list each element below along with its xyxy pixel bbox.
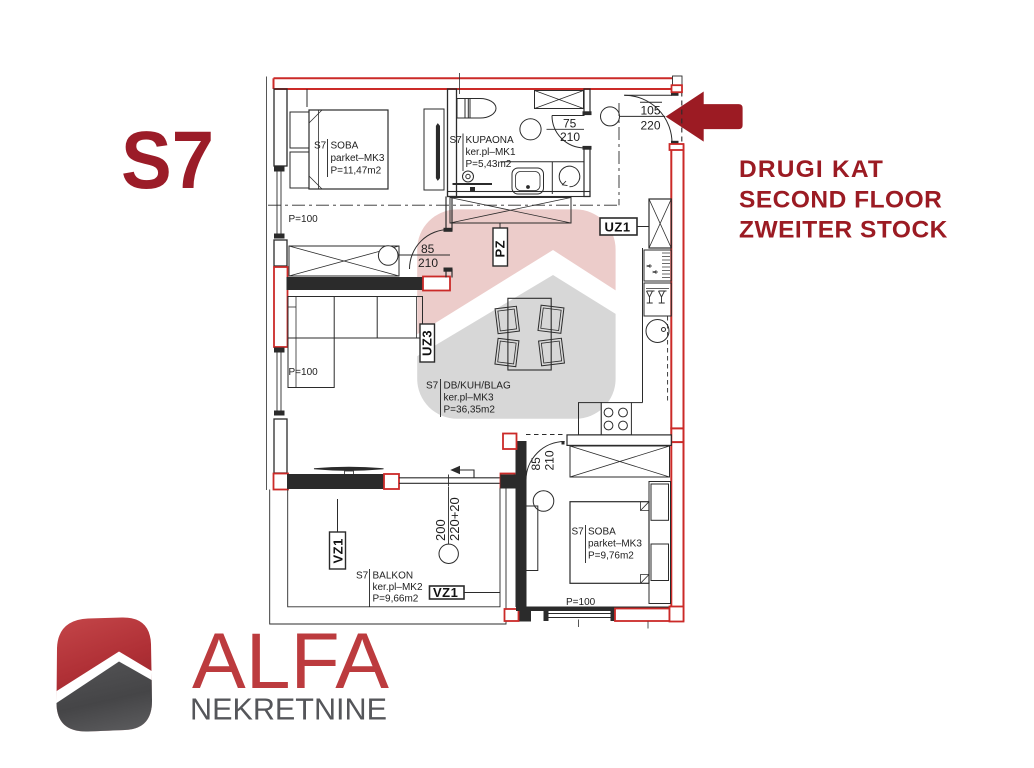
svg-text:ker.pl–MK2: ker.pl–MK2: [373, 582, 423, 593]
svg-text:ZWEITER STOCK: ZWEITER STOCK: [739, 217, 948, 244]
svg-text:UZ1: UZ1: [605, 220, 631, 235]
svg-text:P=100: P=100: [566, 597, 596, 608]
svg-text:ker.pl–MK3: ker.pl–MK3: [444, 393, 494, 404]
svg-text:105: 105: [641, 104, 661, 118]
svg-text:NEKRETNINE: NEKRETNINE: [190, 693, 387, 727]
svg-text:VZ1: VZ1: [433, 585, 458, 600]
svg-text:P=5,43m2: P=5,43m2: [466, 159, 512, 170]
svg-text:SOBA: SOBA: [331, 141, 359, 152]
svg-text:parket–MK3: parket–MK3: [588, 539, 642, 550]
svg-text:P=11,47m2: P=11,47m2: [331, 166, 382, 177]
svg-text:P=9,76m2: P=9,76m2: [588, 551, 634, 562]
svg-text:S7: S7: [450, 135, 463, 146]
svg-text:200: 200: [433, 519, 448, 541]
svg-text:UZ3: UZ3: [420, 330, 435, 356]
svg-text:220+20: 220+20: [447, 497, 462, 541]
svg-text:P=36,35m2: P=36,35m2: [444, 405, 496, 416]
svg-text:SECOND FLOOR: SECOND FLOOR: [739, 187, 942, 214]
svg-text:S7: S7: [356, 571, 369, 582]
svg-text:S7: S7: [314, 141, 327, 152]
svg-text:P=9,66m2: P=9,66m2: [373, 594, 419, 605]
svg-text:75: 75: [563, 117, 577, 131]
svg-text:ker.pl–MK1: ker.pl–MK1: [466, 147, 516, 158]
svg-text:210: 210: [560, 130, 580, 144]
svg-text:DB/KUH/BLAG: DB/KUH/BLAG: [444, 381, 511, 392]
svg-text:S7: S7: [121, 115, 214, 206]
svg-text:SOBA: SOBA: [588, 527, 616, 538]
svg-text:DRUGI KAT: DRUGI KAT: [739, 156, 884, 183]
svg-text:S7: S7: [572, 527, 585, 538]
svg-text:85: 85: [529, 457, 543, 471]
svg-text:VZ1: VZ1: [331, 538, 346, 563]
svg-text:KUPAONA: KUPAONA: [466, 135, 514, 146]
svg-text:85: 85: [421, 242, 435, 256]
svg-text:BALKON: BALKON: [373, 571, 414, 582]
svg-text:210: 210: [418, 256, 438, 270]
svg-text:P=100: P=100: [289, 214, 319, 225]
svg-text:S7: S7: [426, 381, 439, 392]
svg-text:parket–MK3: parket–MK3: [331, 153, 385, 164]
svg-text:220: 220: [641, 119, 661, 133]
svg-text:PZ: PZ: [493, 240, 508, 258]
svg-text:210: 210: [543, 450, 557, 470]
svg-text:P=100: P=100: [289, 367, 319, 378]
